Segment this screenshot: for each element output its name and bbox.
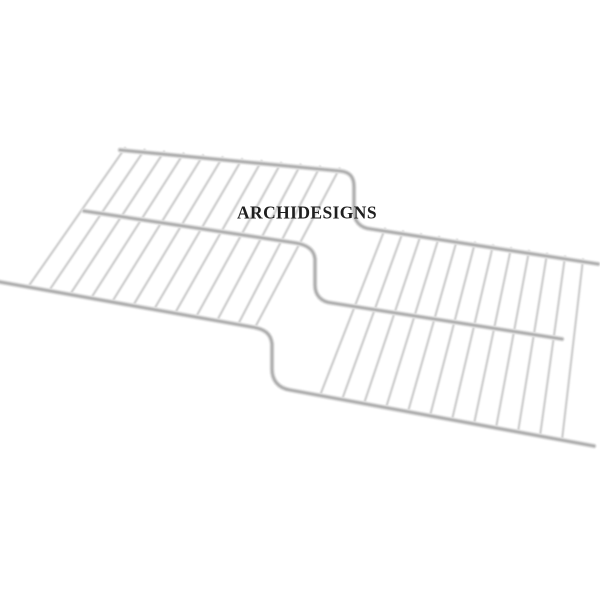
wire-shelf-illustration: ARCHIDESIGNS: [0, 0, 600, 600]
shelf-grid-wires-highlight: [28, 148, 583, 440]
shelf-rails: [0, 150, 598, 446]
wire-shelf: [0, 148, 598, 446]
product-image: ARCHIDESIGNS: [0, 0, 600, 600]
watermark-text: ARCHIDESIGNS: [237, 203, 377, 223]
